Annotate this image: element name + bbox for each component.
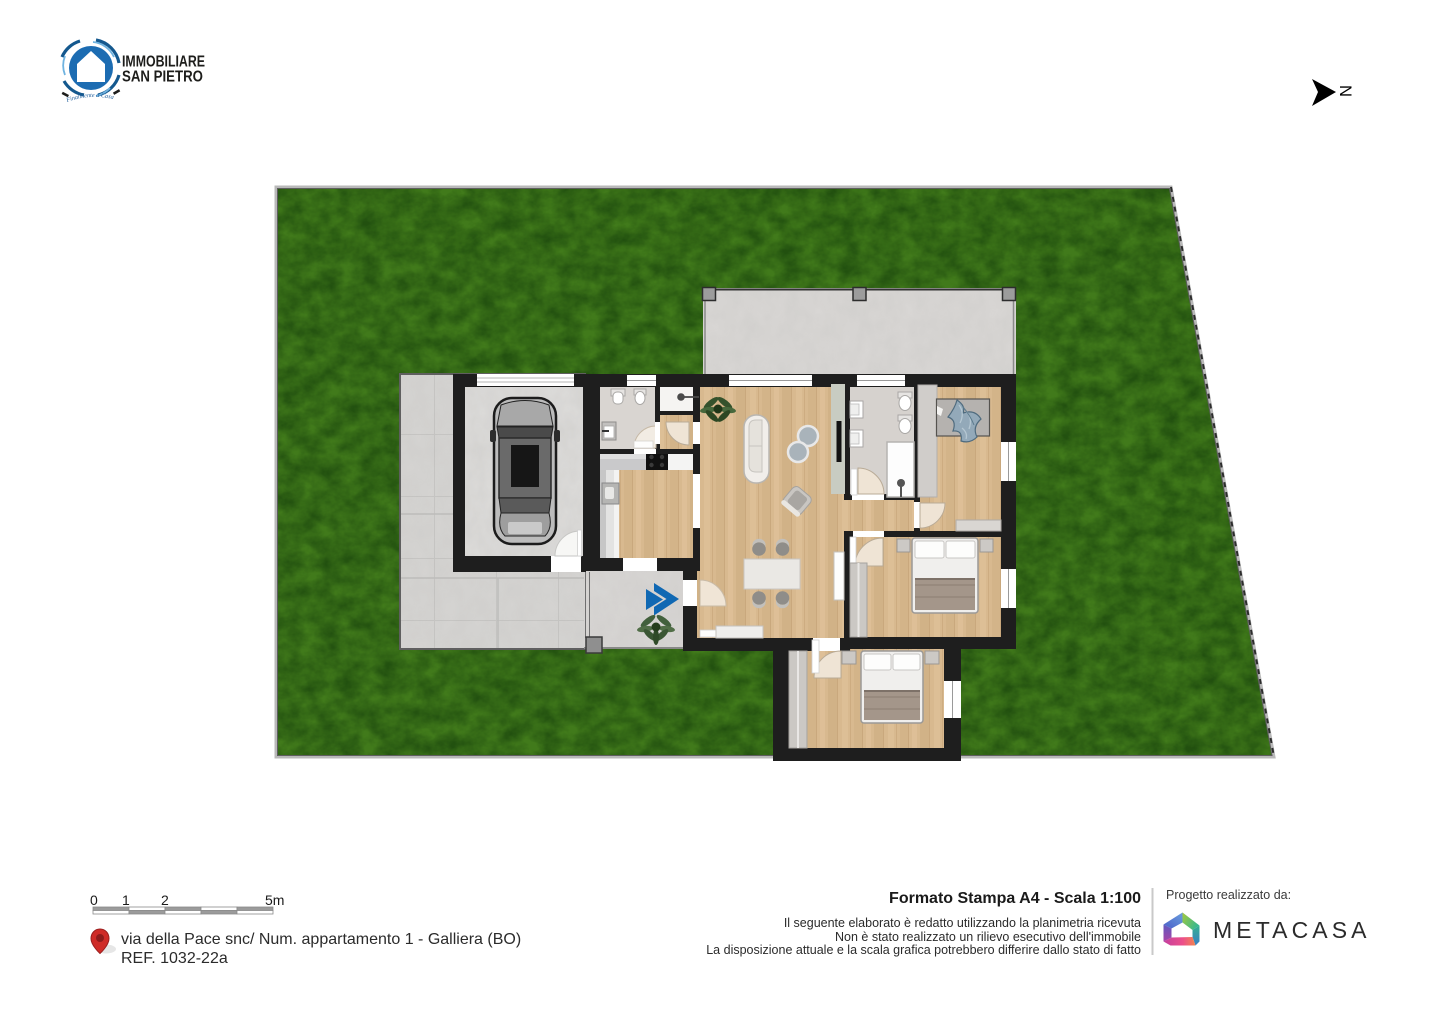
svg-text:2: 2: [161, 892, 169, 908]
svg-text:Progetto realizzato da:: Progetto realizzato da:: [1166, 888, 1291, 902]
svg-text:5m: 5m: [265, 892, 284, 908]
svg-text:La disposizione attuale e la s: La disposizione attuale e la scala grafi…: [706, 943, 1141, 957]
svg-text:Il seguente elaborato è redatt: Il seguente elaborato è redatto utilizza…: [784, 916, 1141, 930]
svg-text:SAN PIETRO: SAN PIETRO: [122, 69, 203, 86]
svg-text:via della Pace snc/ Num. appar: via della Pace snc/ Num. appartamento 1 …: [121, 931, 521, 948]
svg-text:1: 1: [122, 892, 130, 908]
svg-text:Formato Stampa A4 - Scala 1:10: Formato Stampa A4 - Scala 1:100: [889, 890, 1141, 907]
svg-text:METACASA: METACASA: [1213, 917, 1371, 943]
svg-text:REF. 1032-22a: REF. 1032-22a: [121, 950, 228, 967]
svg-text:Finalmente a Casa: Finalmente a Casa: [64, 92, 114, 104]
svg-text:Non è stato realizzato un rili: Non è stato realizzato un rilievo esecut…: [835, 930, 1141, 944]
svg-text:N: N: [1336, 85, 1354, 97]
svg-text:0: 0: [90, 892, 98, 908]
